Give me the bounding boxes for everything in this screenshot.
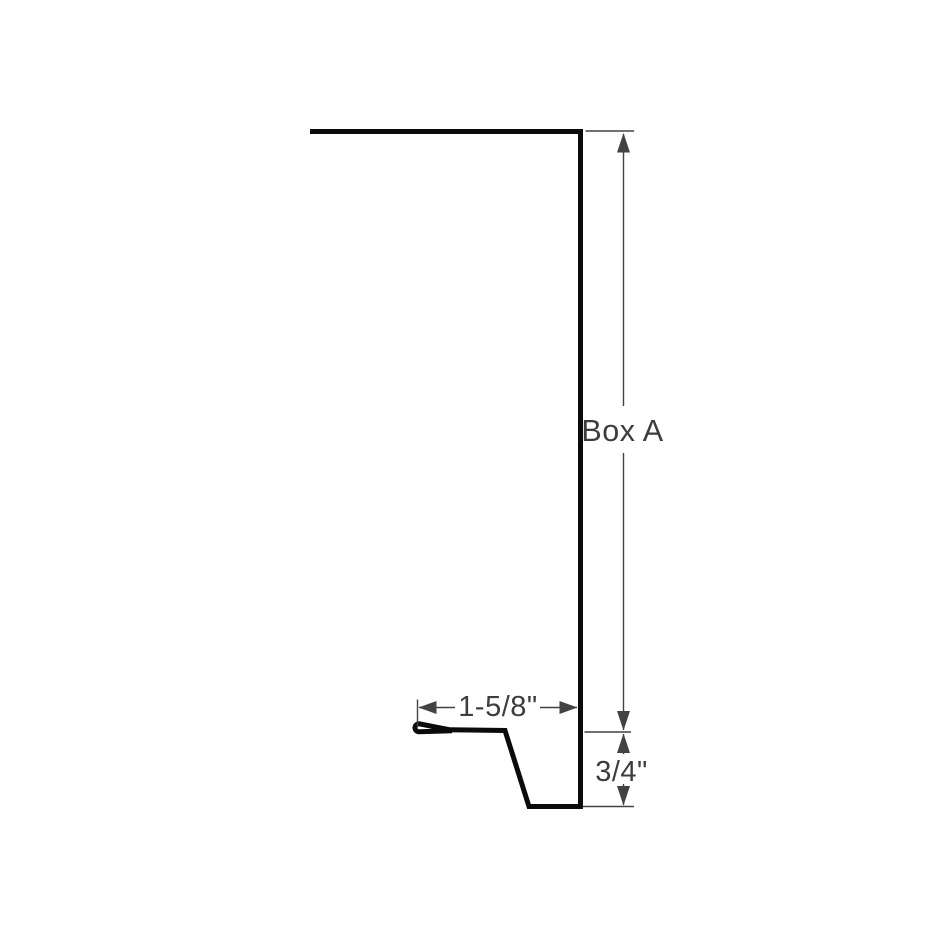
flashing-profile-diagram: Box A 3/4" 1-5/8" bbox=[0, 0, 936, 936]
dimension-box-a: Box A bbox=[581, 131, 664, 732]
arrowhead-left-icon bbox=[419, 701, 437, 714]
arrowhead-right-icon bbox=[560, 701, 578, 714]
dim-label-flange-width: 1-5/8" bbox=[458, 691, 537, 723]
dimension-kick-height: 3/4" bbox=[583, 734, 654, 807]
arrowhead-up-icon bbox=[617, 133, 630, 153]
dim-label-box-a: Box A bbox=[581, 414, 663, 448]
arrowhead-down-icon bbox=[617, 786, 630, 806]
dimension-flange-width: 1-5/8" bbox=[418, 690, 578, 727]
dim-label-kick-height: 3/4" bbox=[595, 756, 648, 788]
arrowhead-up-icon bbox=[617, 734, 630, 754]
arrowhead-down-icon bbox=[617, 711, 630, 731]
drawing-canvas: Box A 3/4" 1-5/8" bbox=[0, 0, 936, 936]
